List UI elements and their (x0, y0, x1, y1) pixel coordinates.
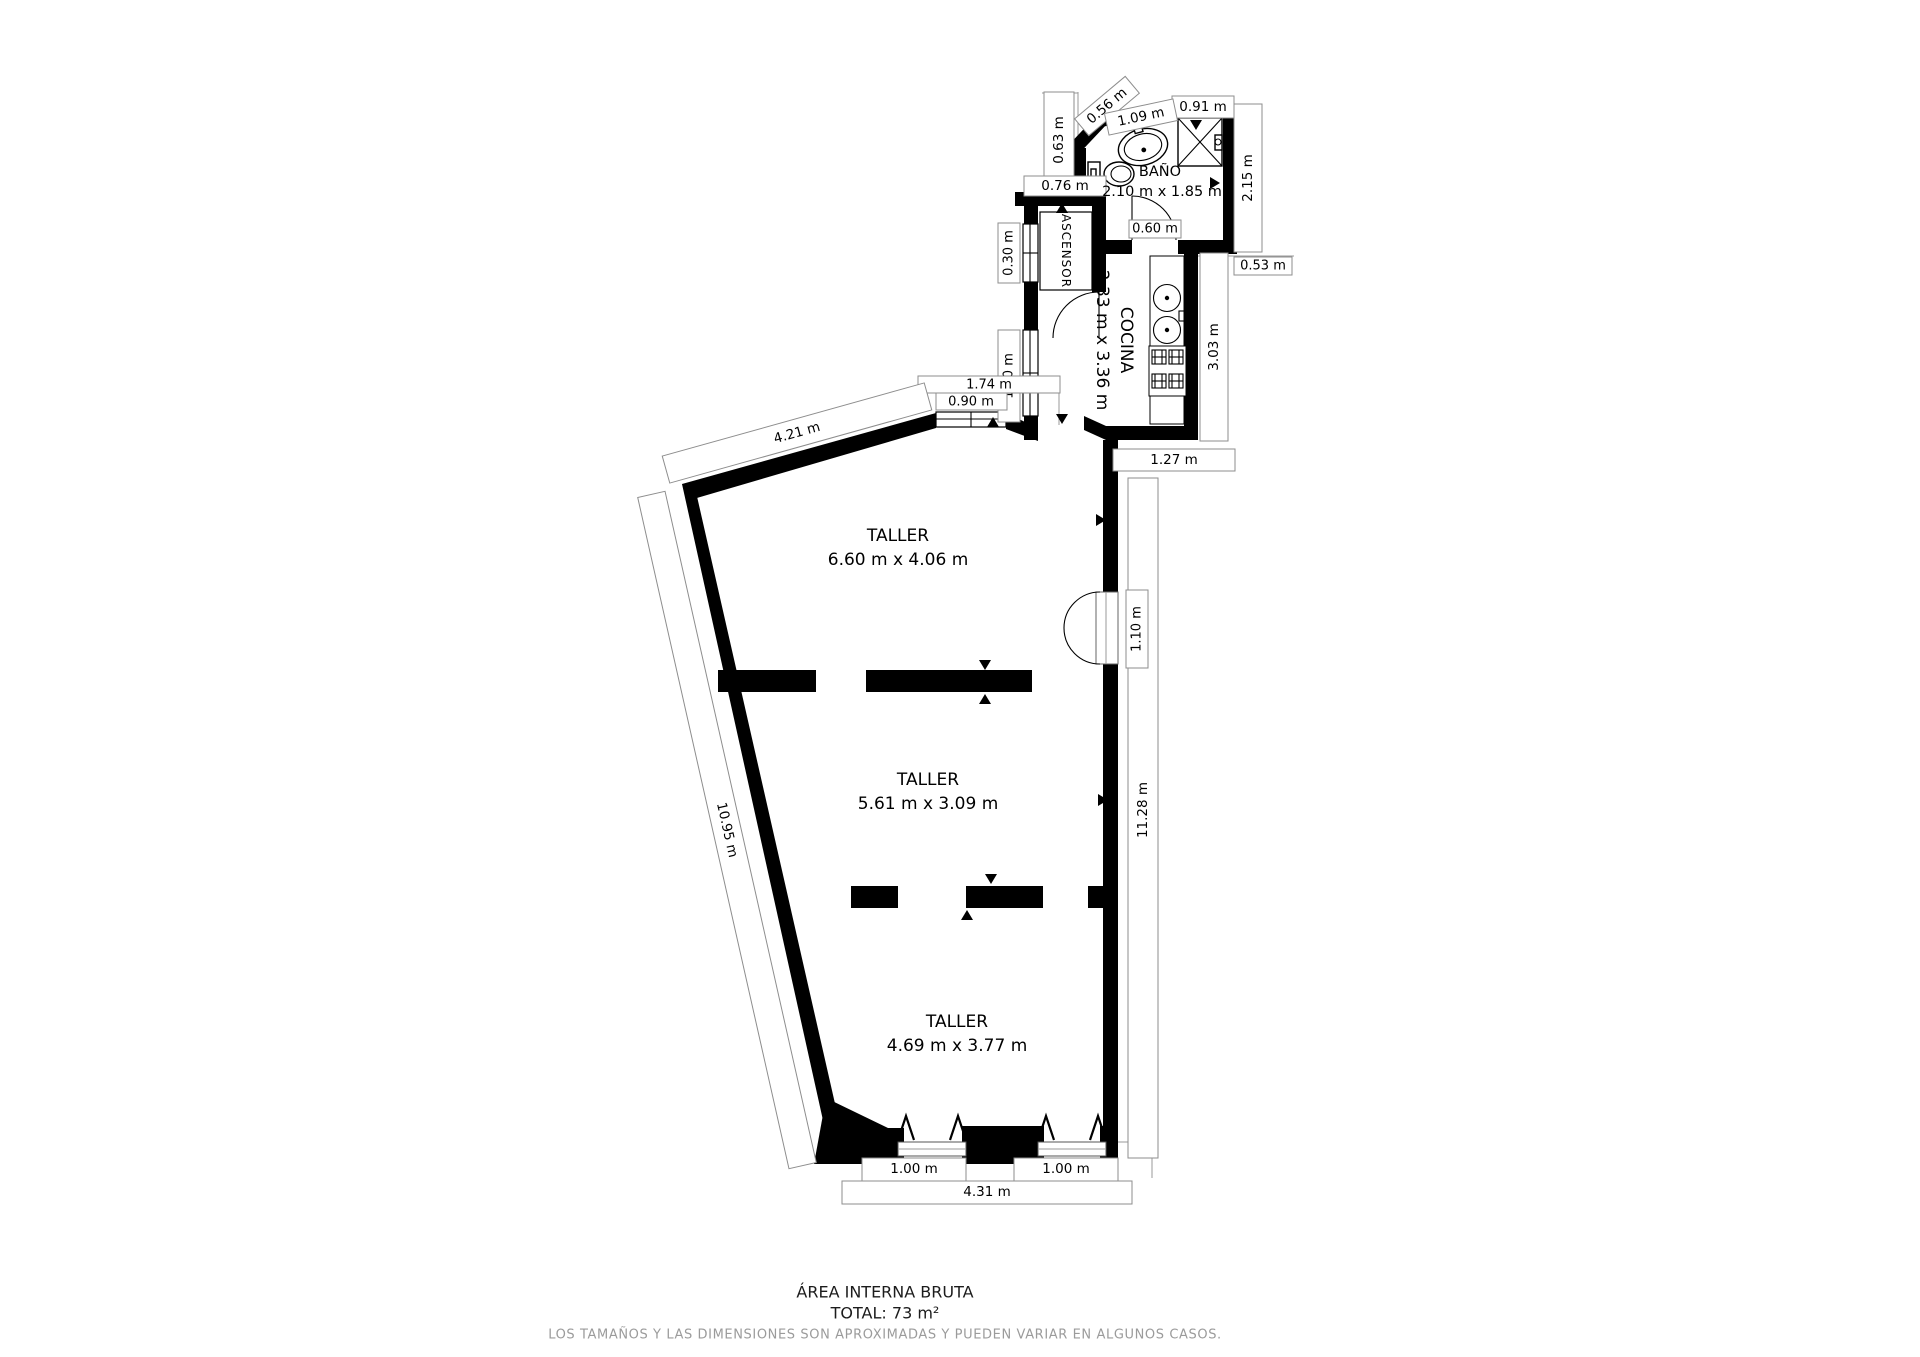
dim-127: 1.27 m (1113, 449, 1235, 471)
dim-090: 0.90 m (936, 393, 1007, 410)
bathroom-name: BAÑO (1139, 163, 1181, 180)
footer: ÁREA INTERNA BRUTA TOTAL: 73 m² LOS TAMA… (548, 1283, 1222, 1343)
dim-100a-label: 1.00 m (890, 1161, 938, 1177)
kitchen-fixtures (1149, 256, 1186, 424)
partition1-left (718, 670, 816, 692)
dim-431-label: 4.31 m (963, 1184, 1011, 1200)
footer-disclaimer: LOS TAMAÑOS Y LAS DIMENSIONES SON APROXI… (548, 1327, 1222, 1343)
kitchen-wall-elbow (1084, 416, 1106, 440)
dim-303-label: 3.03 m (1206, 323, 1222, 371)
workshop-double-door (1064, 592, 1118, 664)
footer-title: ÁREA INTERNA BRUTA (796, 1283, 973, 1302)
dim-076-label: 0.76 m (1041, 178, 1089, 194)
dim-110: 1.10 m (1126, 590, 1148, 668)
dim-063-label: 0.63 m (1051, 116, 1067, 164)
workshop1-name: TALLER (866, 526, 929, 546)
floorplan-canvas: 0.91 m 0.56 m 1.09 m 0.63 m 2.15 m 0.76 … (0, 0, 1920, 1357)
dim-091-label: 0.91 m (1179, 99, 1227, 115)
dim-060: 0.60 m (1129, 220, 1181, 238)
dim-174-label: 1.74 m (966, 378, 1012, 393)
workshop2-name: TALLER (896, 770, 959, 790)
main-wall-right-lower (1103, 663, 1118, 1164)
stove-icon (1149, 346, 1186, 396)
workshop3-dims: 4.69 m x 3.77 m (887, 1036, 1028, 1056)
dim-053-label: 0.53 m (1240, 259, 1286, 274)
dim-127-label: 1.27 m (1150, 452, 1198, 468)
dim-110-label: 1.10 m (1130, 606, 1145, 652)
kitchen-dims: 2.33 m x 3.36 m (1092, 270, 1112, 411)
dim-030-label: 0.30 m (1002, 230, 1017, 276)
bathroom-dims: 2.10 m x 1.85 m (1102, 184, 1222, 200)
dim-090-label: 0.90 m (948, 395, 994, 410)
window-corridor-030 (1023, 224, 1038, 282)
bath-wall-bottom-right (1178, 240, 1237, 254)
partition2-mid (966, 886, 1043, 908)
partition2-left (851, 886, 898, 908)
dim-303: 3.03 m (1200, 253, 1228, 441)
window-corridor-120 (1023, 330, 1038, 416)
dim-060-label: 0.60 m (1132, 222, 1178, 237)
main-wall-bottom-chamfer (814, 1098, 888, 1164)
dim-174: 1.74 m (918, 376, 1060, 393)
workshop2-dims: 5.61 m x 3.09 m (858, 794, 999, 814)
dim-1095: 10.95 m (638, 491, 817, 1168)
footer-total-area: TOTAL: 73 m² (830, 1304, 940, 1323)
dim-431: 4.31 m (842, 1181, 1132, 1204)
dim-053: 0.53 m (1234, 257, 1292, 275)
floorplan-drawing: 0.91 m 0.56 m 1.09 m 0.63 m 2.15 m 0.76 … (0, 0, 1920, 1357)
dim-100b: 1.00 m (1014, 1158, 1118, 1181)
kitchen-counter (1150, 256, 1184, 424)
partition1-right (866, 670, 1032, 692)
dim-100a: 1.00 m (862, 1158, 966, 1181)
dim-215-label: 2.15 m (1240, 154, 1256, 202)
dim-076: 0.76 m (1024, 176, 1106, 196)
shower-icon (1178, 118, 1222, 166)
dim-1128: 11.28 m (1128, 478, 1158, 1158)
dim-030: 0.30 m (998, 223, 1020, 283)
kitchen-name: COCINA (1116, 307, 1136, 374)
dim-091: 0.91 m (1172, 96, 1234, 118)
partition2-right (1088, 886, 1118, 908)
workshop3-name: TALLER (925, 1012, 988, 1032)
dim-215: 2.15 m (1234, 104, 1262, 252)
dim-063: 0.63 m (1044, 92, 1074, 188)
kitchen-wall-bottom (1106, 426, 1198, 440)
dim-1128-label: 11.28 m (1135, 782, 1151, 838)
workshop1-dims: 6.60 m x 4.06 m (828, 550, 969, 570)
elevator-name: ASCENSOR (1059, 214, 1073, 288)
dim-100b-label: 1.00 m (1042, 1161, 1090, 1177)
